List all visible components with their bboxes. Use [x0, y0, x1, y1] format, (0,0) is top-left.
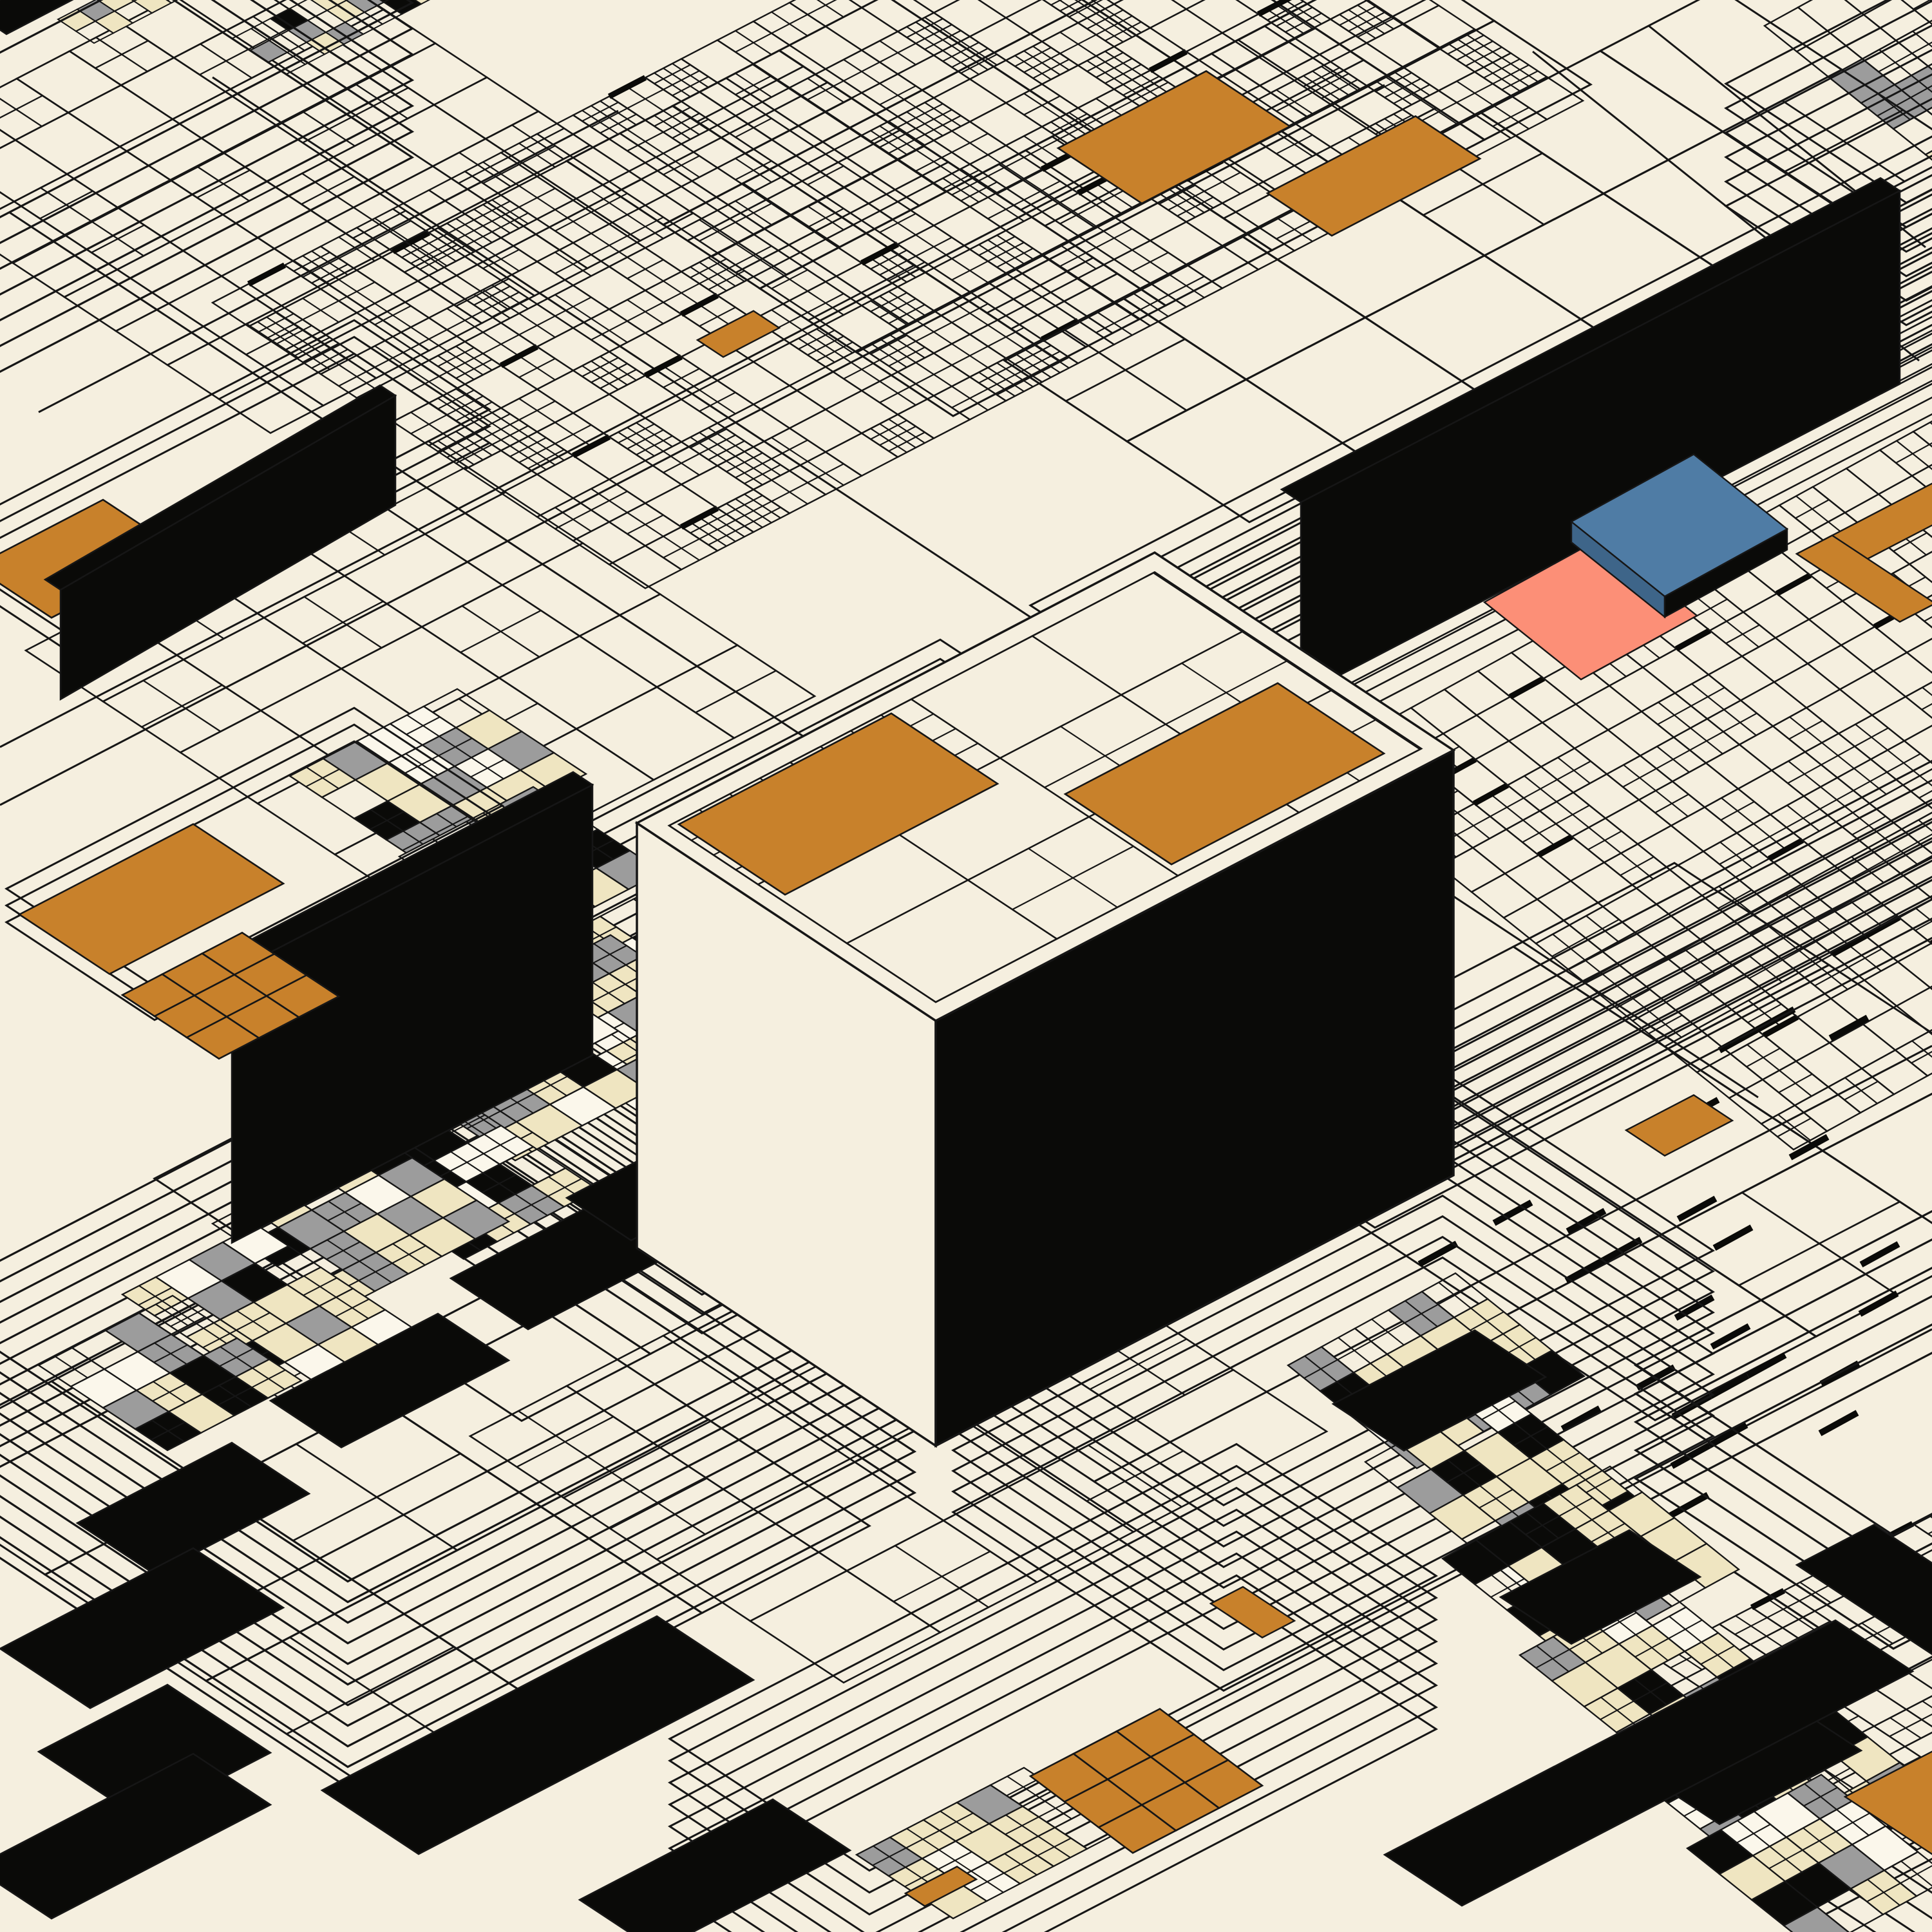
generative-artwork-stage [0, 0, 1932, 1932]
generative-artwork-canvas [0, 0, 1932, 1932]
